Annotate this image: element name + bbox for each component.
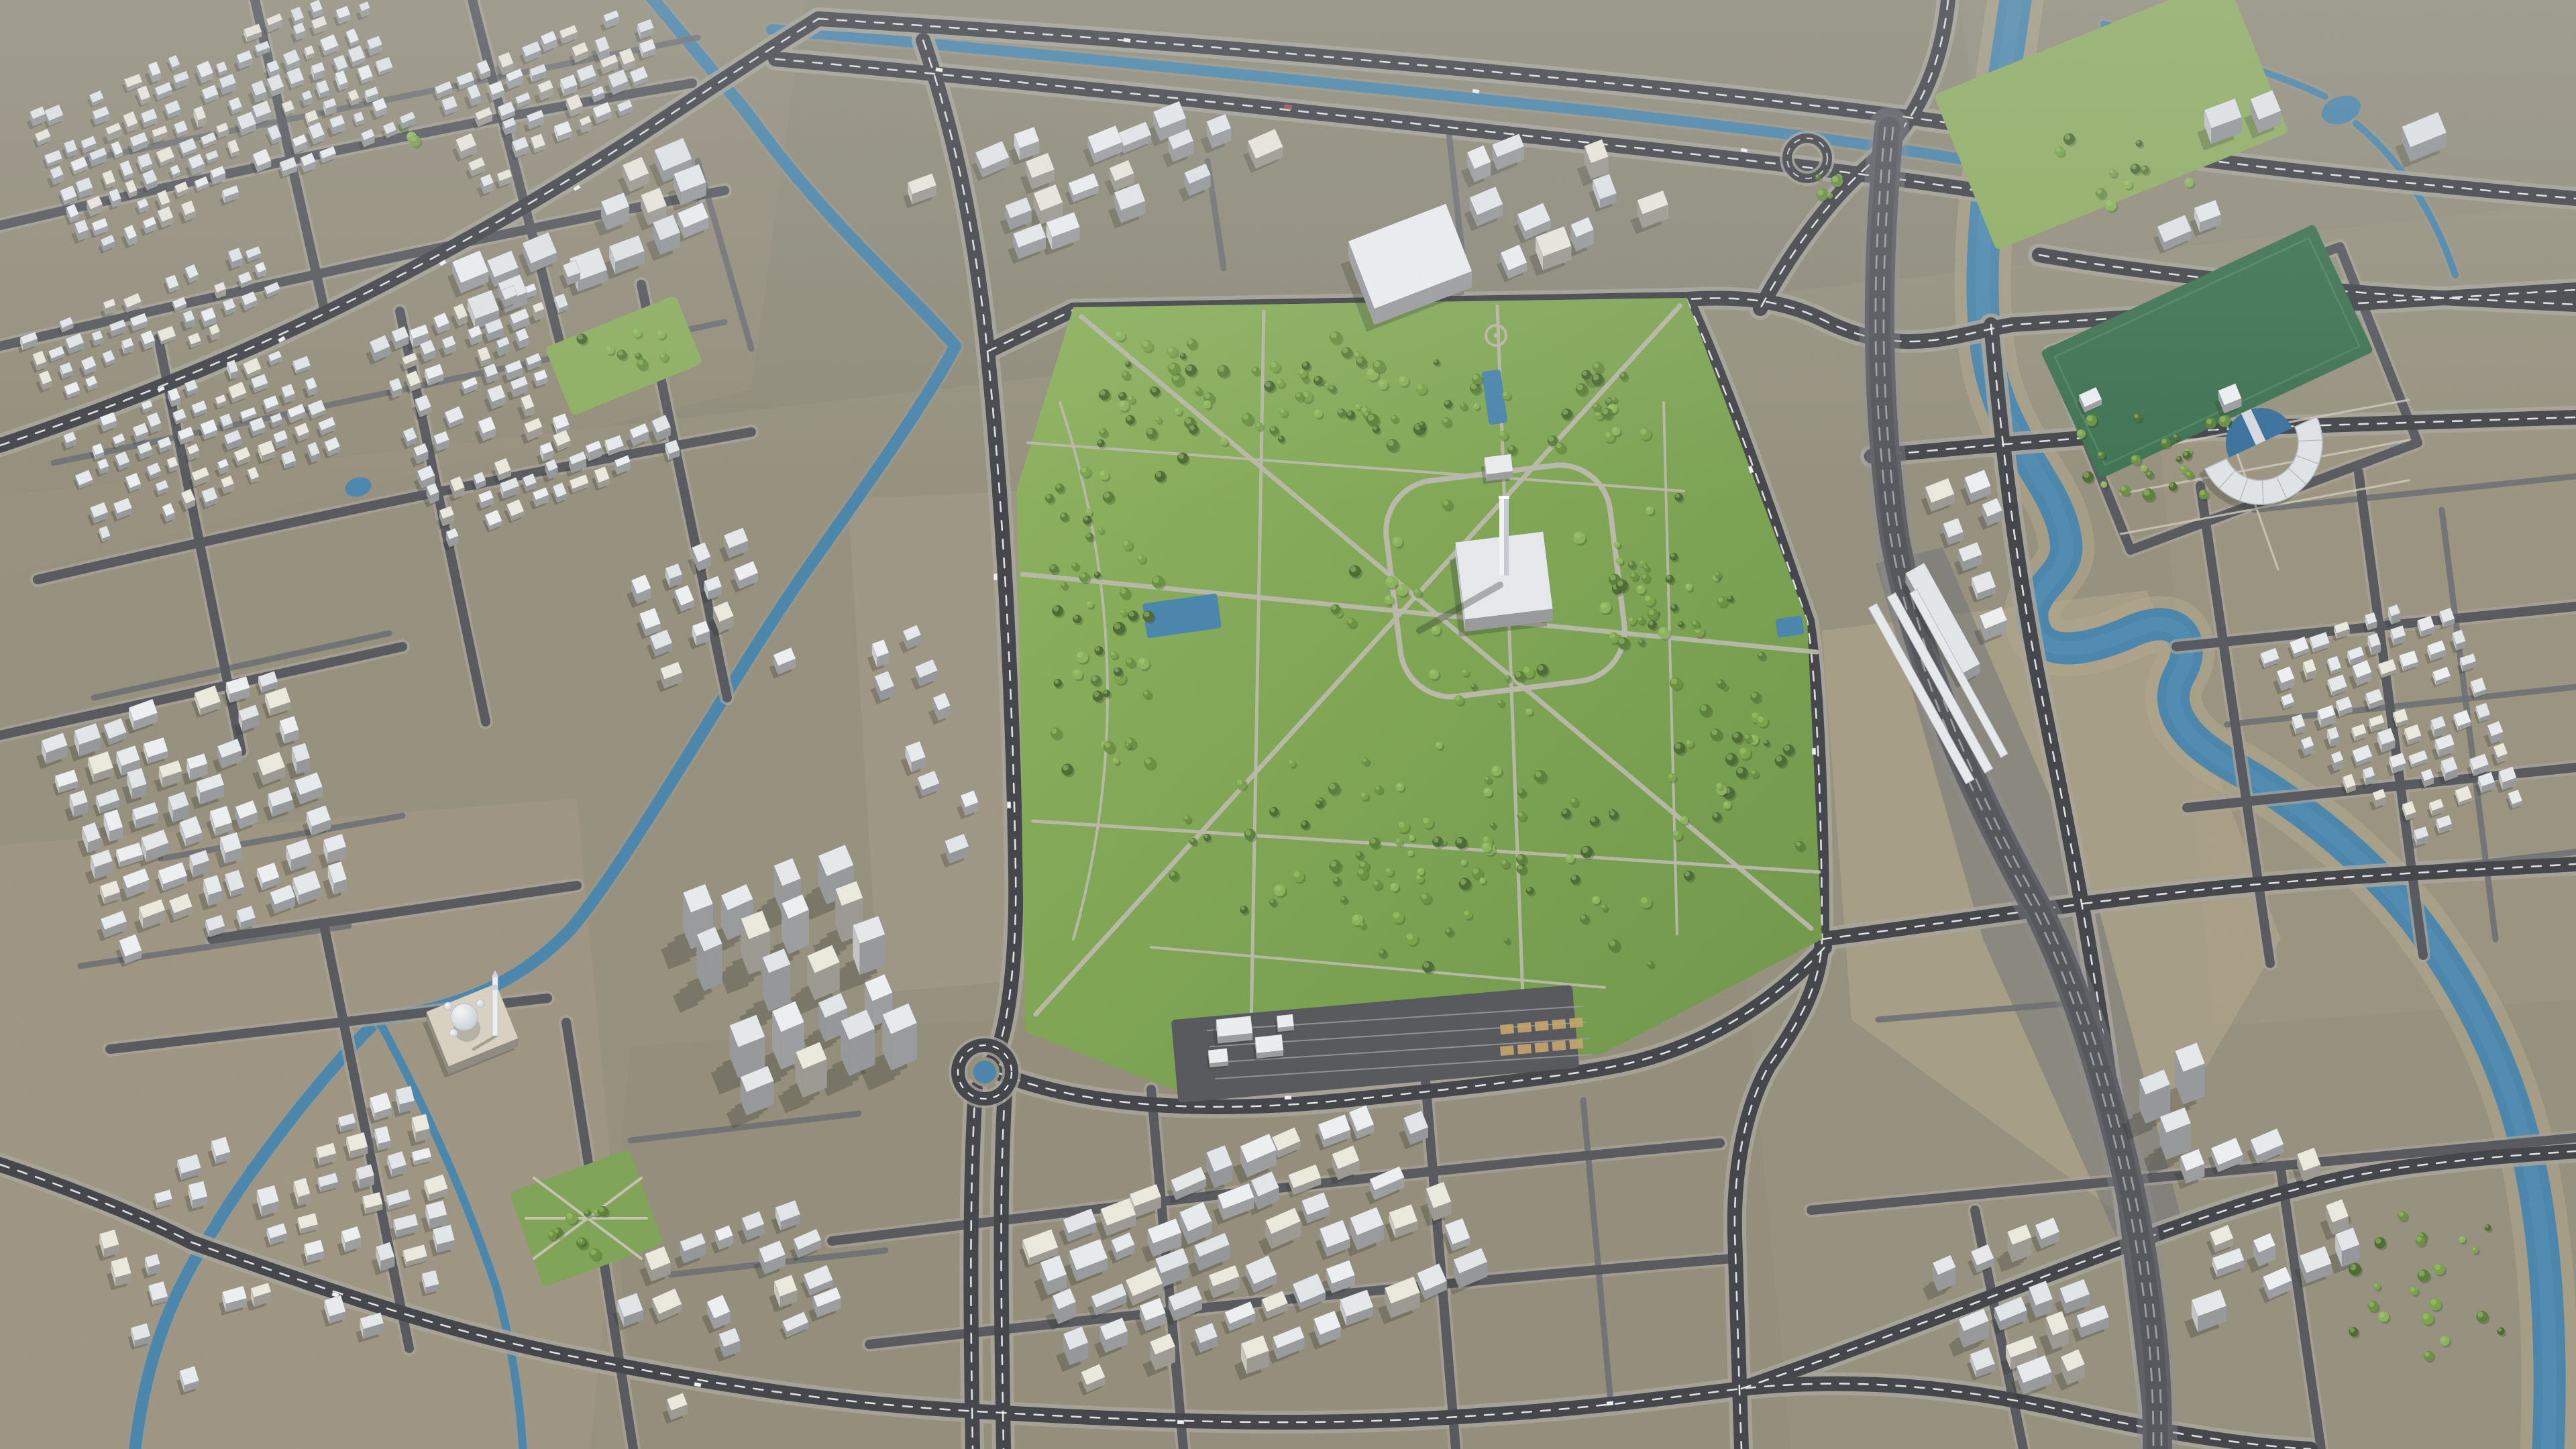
- city-3d-map-canvas[interactable]: [0, 0, 2576, 1449]
- atmosphere: [0, 0, 2576, 1449]
